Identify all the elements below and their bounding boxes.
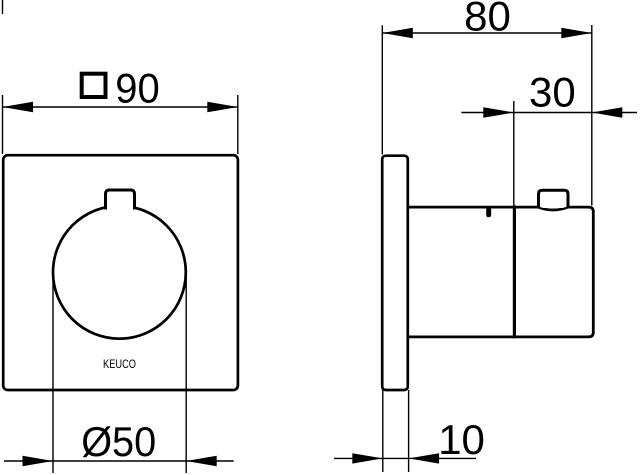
- svg-text:90: 90: [115, 64, 160, 111]
- svg-text:80: 80: [464, 0, 511, 39]
- svg-text:KEUCO: KEUCO: [103, 359, 136, 371]
- svg-text:Ø50: Ø50: [81, 418, 156, 465]
- svg-text:10: 10: [438, 416, 485, 463]
- svg-text:30: 30: [529, 69, 576, 116]
